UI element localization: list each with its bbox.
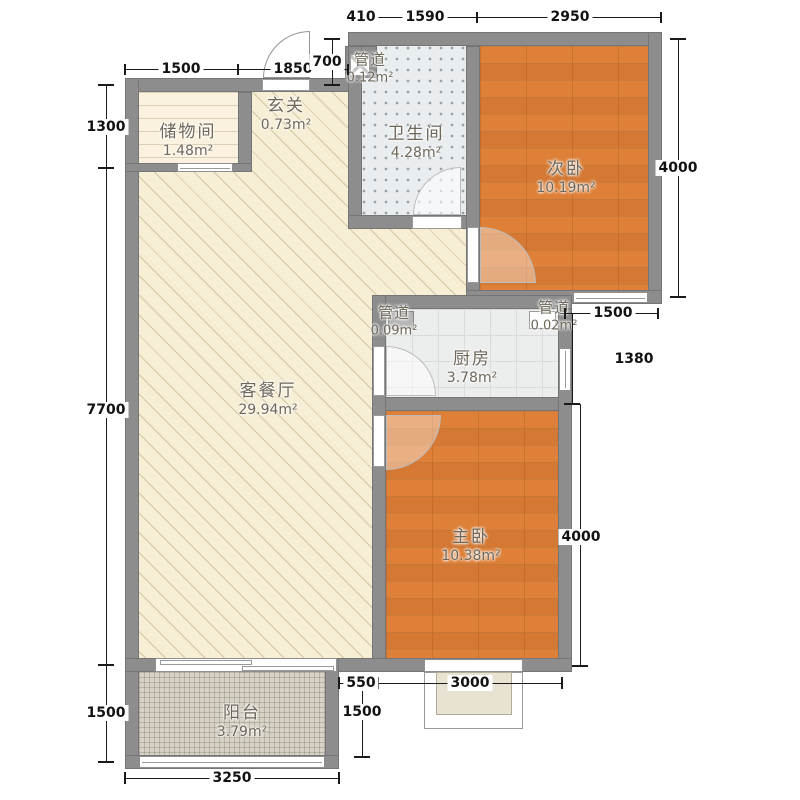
room-label-balcony: 阳台 3.79m² <box>217 698 267 740</box>
room-area: 0.12m² <box>347 71 394 86</box>
wall <box>238 92 252 172</box>
room-label-kitchen: 厨房 3.78m² <box>447 344 497 386</box>
dim-tick <box>98 167 114 169</box>
dim-tick <box>670 296 686 298</box>
door-leaf-entrance <box>262 79 310 91</box>
room-area: 0.02m² <box>531 319 578 334</box>
sliding-door-balcony <box>155 658 337 672</box>
dim-tick <box>324 38 340 40</box>
dim-label-410: 410 <box>343 9 378 25</box>
room-name: 主卧 <box>452 522 490 547</box>
wall <box>325 658 339 769</box>
room-label-bedroom2: 次卧 10.19m² <box>536 154 595 196</box>
window-storage-opening <box>177 163 233 172</box>
wall <box>348 32 662 46</box>
room-area: 0.09m² <box>371 324 418 339</box>
dim-label-1500-left: 1500 <box>84 705 129 721</box>
room-label-hallway: 玄关 0.73m² <box>261 91 311 133</box>
dim-label-1380: 1380 <box>612 351 657 367</box>
room-name: 卫生间 <box>388 119 445 144</box>
dim-line <box>106 85 107 762</box>
window-bay-band <box>424 659 523 672</box>
room-area: 1.48m² <box>163 143 213 159</box>
dim-tick <box>98 84 114 86</box>
room-area: 4.28m² <box>391 145 441 161</box>
room-area: 3.79m² <box>217 724 267 740</box>
room-label-duct-top: 管道 0.12m² <box>347 49 394 86</box>
room-area: 29.94m² <box>238 402 297 418</box>
dim-label-1500-right: 1500 <box>591 305 636 321</box>
room-label-master: 主卧 10.38m² <box>441 522 500 564</box>
dim-tick <box>338 772 340 784</box>
dim-label-7700: 7700 <box>84 402 129 418</box>
room-area: 3.78m² <box>447 370 497 386</box>
dim-tick <box>354 756 370 758</box>
dim-label-3000: 3000 <box>448 675 493 691</box>
dim-tick <box>237 64 239 75</box>
window-balcony <box>139 756 325 768</box>
dim-tick <box>324 84 340 86</box>
door-leaf-kitchen <box>373 346 385 396</box>
dim-tick <box>338 677 340 689</box>
dim-tick <box>98 664 114 666</box>
door-leaf-master <box>373 415 385 467</box>
dim-tick <box>564 403 580 405</box>
room-label-storage: 储物间 1.48m² <box>160 117 217 159</box>
room-name: 管道 <box>378 302 410 323</box>
dim-label-1590: 1590 <box>403 9 448 25</box>
door-leaf-bathroom <box>412 216 462 229</box>
dim-label-4000-bedroom2: 4000 <box>656 160 701 176</box>
dim-tick <box>347 64 349 75</box>
dim-tick <box>564 308 566 319</box>
room-name: 储物间 <box>160 117 217 142</box>
dim-tick <box>476 12 478 23</box>
dim-tick <box>124 64 126 75</box>
door-leaf-bedroom2 <box>467 227 479 283</box>
wall <box>372 397 572 411</box>
dim-tick <box>572 665 588 667</box>
room-area: 10.19m² <box>536 180 595 196</box>
room-name: 管道 <box>354 49 386 70</box>
dim-tick <box>670 38 686 40</box>
dim-label-1500-balcony: 1500 <box>340 704 385 720</box>
sliding-door-panel <box>242 666 334 671</box>
room-label-duct-kitchen-left: 管道 0.09m² <box>371 302 418 339</box>
room-label-duct-kitchen-right: 管道 0.02m² <box>531 297 578 334</box>
dim-label-550: 550 <box>343 675 378 691</box>
dim-tick <box>98 761 114 763</box>
room-name: 阳台 <box>223 698 261 723</box>
window-kitchen <box>559 348 571 391</box>
room-label-living: 客餐厅 29.94m² <box>238 376 297 418</box>
floor-plan-canvas: 储物间 1.48m² 玄关 0.73m² 管道 0.12m² 卫生间 4.28m… <box>0 0 800 800</box>
dim-label-700: 700 <box>309 54 344 70</box>
sliding-door-panel <box>160 660 252 665</box>
dim-line <box>572 313 573 404</box>
dim-label-4000-master: 4000 <box>559 529 604 545</box>
dim-tick <box>561 677 563 689</box>
dim-line <box>362 690 363 757</box>
room-area: 0.73m² <box>261 117 311 133</box>
room-name: 次卧 <box>547 154 585 179</box>
dim-tick <box>124 772 126 784</box>
room-area: 10.38m² <box>441 548 500 564</box>
dim-label-3250: 3250 <box>210 770 255 786</box>
room-name: 玄关 <box>267 91 305 116</box>
dim-line <box>348 17 662 18</box>
dim-label-1300: 1300 <box>84 119 129 135</box>
dim-label-1500-top: 1500 <box>159 61 204 77</box>
window-bedroom2 <box>573 292 648 303</box>
dim-label-2950: 2950 <box>548 9 593 25</box>
room-name: 客餐厅 <box>240 376 297 401</box>
dim-tick <box>657 308 659 319</box>
room-name: 厨房 <box>453 344 491 369</box>
room-label-bathroom: 卫生间 4.28m² <box>388 119 445 161</box>
dim-tick <box>660 12 662 23</box>
